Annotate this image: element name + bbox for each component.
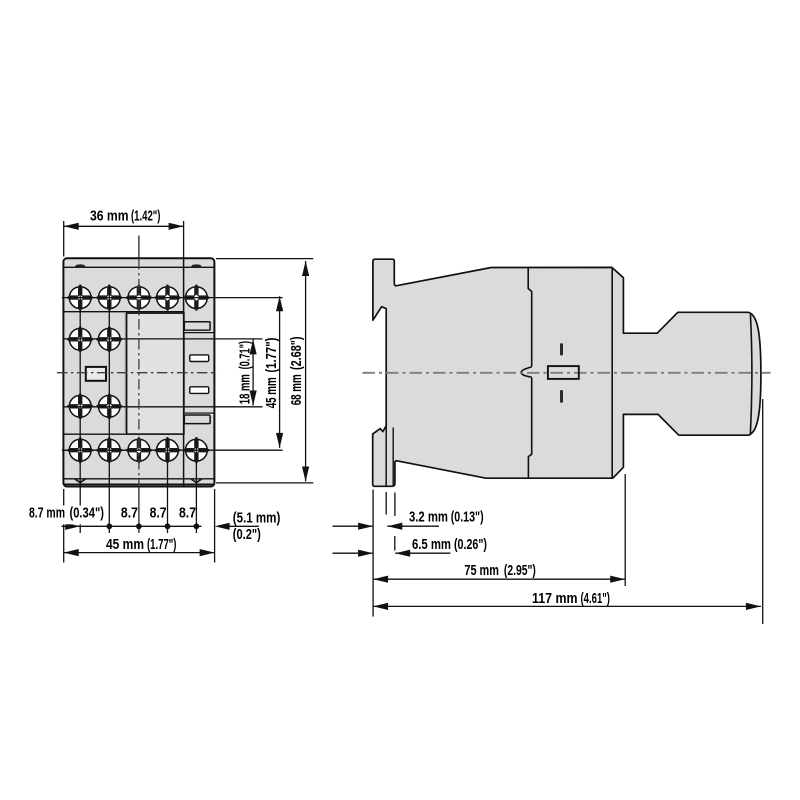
svg-text:45 mm: 45 mm <box>106 537 144 553</box>
svg-text:(2.95"): (2.95") <box>504 563 536 579</box>
svg-text:8.7: 8.7 <box>150 506 167 522</box>
svg-text:(0.34"): (0.34") <box>70 506 105 522</box>
svg-text:(5.1 mm): (5.1 mm) <box>233 510 281 526</box>
svg-text:68 mm: 68 mm <box>289 374 305 405</box>
svg-text:(4.61"): (4.61") <box>581 591 611 607</box>
svg-text:117 mm: 117 mm <box>532 591 578 607</box>
svg-text:18 mm: 18 mm <box>238 374 254 404</box>
svg-text:8.7: 8.7 <box>121 506 138 522</box>
svg-text:3.2 mm: 3.2 mm <box>409 510 448 526</box>
svg-text:(0.26"): (0.26") <box>454 537 487 553</box>
svg-text:6.5 mm: 6.5 mm <box>412 537 451 553</box>
svg-text:(1.77"): (1.77") <box>264 337 280 372</box>
svg-text:(0.13"): (0.13") <box>451 510 484 526</box>
svg-text:(1.42"): (1.42") <box>131 209 161 225</box>
svg-text:36 mm: 36 mm <box>90 209 129 225</box>
svg-text:(0.71"): (0.71") <box>238 341 254 370</box>
svg-text:(0.2"): (0.2") <box>233 527 261 543</box>
svg-text:(2.68"): (2.68") <box>289 336 305 370</box>
svg-text:45 mm: 45 mm <box>264 377 280 408</box>
svg-text:(1.77"): (1.77") <box>147 537 177 553</box>
svg-text:8.7: 8.7 <box>179 506 196 522</box>
svg-text:75 mm: 75 mm <box>464 563 499 579</box>
svg-text:8.7 mm: 8.7 mm <box>29 506 65 522</box>
